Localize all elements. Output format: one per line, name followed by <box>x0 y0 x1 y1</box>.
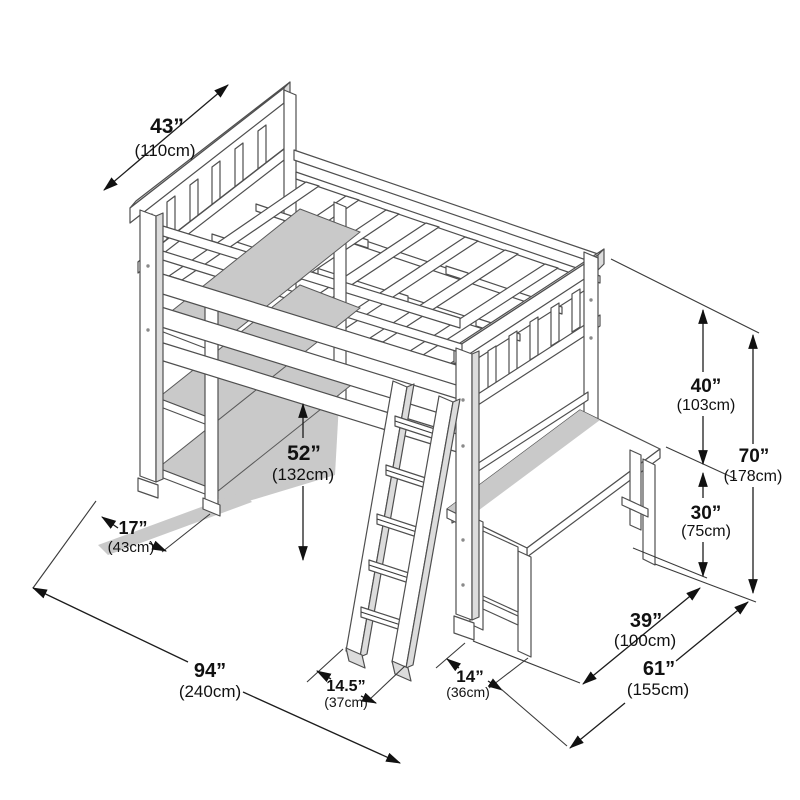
dim-overall-length: 94” (240cm) <box>33 588 400 763</box>
dim-bed-width: 43” (110cm) <box>104 85 228 190</box>
ladder <box>346 381 460 681</box>
dim-desk-height: 30” (75cm) <box>681 473 731 576</box>
dim-overall-length-metric: (240cm) <box>179 682 241 701</box>
dim-guardrail-to-desk-height-inches: 40” <box>691 376 722 397</box>
dim-bed-to-desk-gap: 14” (36cm) <box>436 643 528 700</box>
dim-overall-depth-metric: (155cm) <box>627 680 689 699</box>
dim-overall-length-inches: 94” <box>194 660 226 682</box>
dim-overall-depth-inches: 61” <box>643 658 675 680</box>
dim-shelf-depth-inches: 17” <box>118 518 147 538</box>
dim-overall-depth: 61” (155cm) <box>501 602 748 748</box>
dim-overall-height-metric: (178cm) <box>724 468 783 485</box>
dim-ladder-footprint-inches: 14.5” <box>326 678 365 695</box>
loft-bed-dimension-diagram: 43” (110cm) 52” (132cm) 17” (43cm) 94” (… <box>0 0 800 800</box>
dim-bed-width-inches: 43” <box>150 115 184 138</box>
dim-bed-width-metric: (110cm) <box>134 141 195 160</box>
dim-desk-depth-metric: (100cm) <box>614 631 676 650</box>
dim-ladder-footprint-metric: (37cm) <box>324 694 368 710</box>
dim-desk-depth-inches: 39” <box>630 610 662 632</box>
dim-under-bed-clearance-metric: (132cm) <box>272 465 334 484</box>
dim-desk-height-inches: 30” <box>691 503 722 524</box>
dim-overall-height-inches: 70” <box>739 446 770 467</box>
dim-overall-height: 70” (178cm) <box>724 335 783 593</box>
loft-bed-illustration <box>98 82 660 681</box>
dim-under-bed-clearance-inches: 52” <box>287 442 321 465</box>
diagram-canvas: 43” (110cm) 52” (132cm) 17” (43cm) 94” (… <box>0 0 800 800</box>
dim-shelf-depth-metric: (43cm) <box>108 539 155 556</box>
dim-guardrail-to-desk-height-metric: (103cm) <box>677 397 736 414</box>
dim-desk-height-metric: (75cm) <box>681 523 731 540</box>
dim-bed-to-desk-gap-metric: (36cm) <box>446 684 490 700</box>
